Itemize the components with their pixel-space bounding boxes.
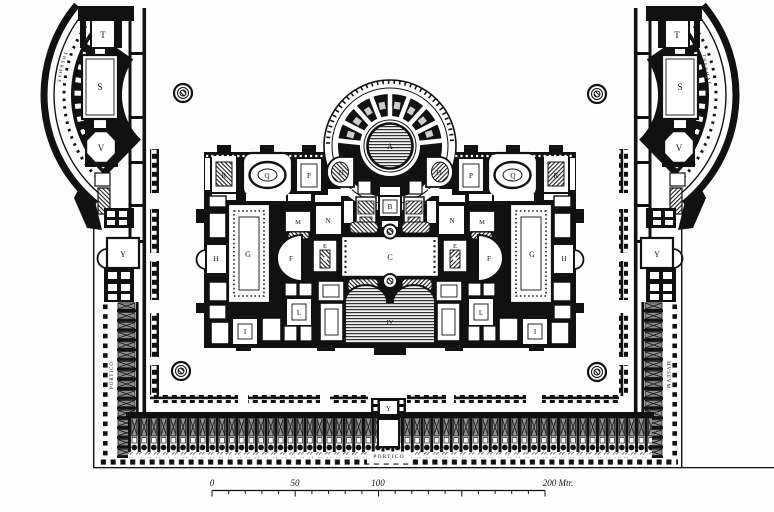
svg-text:O: O bbox=[436, 169, 441, 177]
svg-text:S: S bbox=[677, 82, 682, 92]
svg-text:E: E bbox=[453, 243, 457, 250]
svg-text:S: S bbox=[97, 82, 102, 92]
svg-text:H: H bbox=[561, 255, 566, 263]
svg-text:C: C bbox=[387, 253, 392, 262]
svg-text:N: N bbox=[325, 217, 330, 225]
svg-text:O: O bbox=[338, 169, 343, 177]
svg-text:PORTICO: PORTICO bbox=[110, 361, 115, 389]
svg-text:F: F bbox=[487, 255, 491, 263]
svg-text:R: R bbox=[222, 172, 227, 180]
svg-text:50: 50 bbox=[291, 478, 301, 488]
svg-text:M: M bbox=[295, 219, 301, 226]
svg-text:L: L bbox=[479, 309, 483, 317]
svg-text:Y: Y bbox=[386, 405, 391, 413]
svg-text:0: 0 bbox=[210, 478, 215, 488]
svg-text:T: T bbox=[674, 30, 680, 40]
svg-text:R: R bbox=[554, 172, 559, 180]
svg-text:B: B bbox=[388, 203, 393, 211]
svg-text:V: V bbox=[98, 143, 105, 153]
svg-text:P: P bbox=[307, 172, 311, 180]
svg-text:Q: Q bbox=[510, 172, 515, 180]
svg-text:G: G bbox=[245, 250, 251, 259]
svg-text:M: M bbox=[479, 219, 485, 226]
svg-text:G: G bbox=[529, 250, 535, 259]
svg-text:Y: Y bbox=[654, 250, 660, 259]
svg-text:V: V bbox=[676, 143, 683, 153]
svg-text:P: P bbox=[469, 172, 473, 180]
svg-text:PORTICO: PORTICO bbox=[373, 454, 405, 460]
svg-text:T: T bbox=[100, 30, 106, 40]
svg-text:E: E bbox=[323, 243, 327, 250]
svg-text:100: 100 bbox=[371, 478, 385, 488]
svg-text:L: L bbox=[297, 309, 301, 317]
svg-text:Q: Q bbox=[264, 172, 269, 180]
svg-text:H: H bbox=[213, 255, 218, 263]
svg-text:F: F bbox=[289, 255, 293, 263]
svg-text:Y: Y bbox=[120, 250, 126, 259]
svg-text:A: A bbox=[387, 142, 393, 151]
svg-text:N: N bbox=[449, 217, 454, 225]
svg-text:200 Mtr.: 200 Mtr. bbox=[543, 478, 574, 488]
svg-text:IV: IV bbox=[387, 319, 394, 326]
svg-text:MVSEVM: MVSEVM bbox=[665, 361, 670, 389]
